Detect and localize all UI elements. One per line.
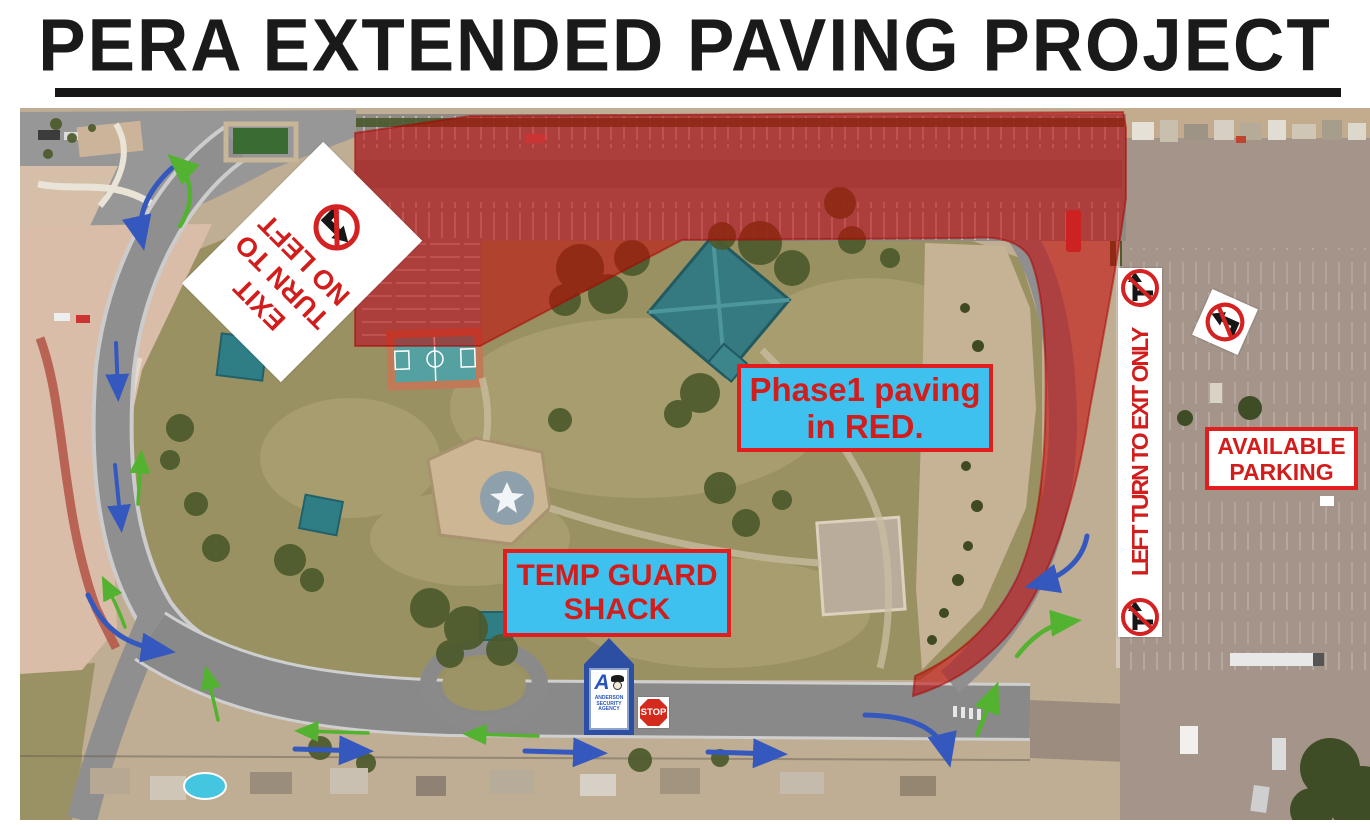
page: { "title": "PERA EXTENDED PAVING PROJECT…: [0, 0, 1370, 825]
title-underline: [55, 88, 1341, 97]
guard-shack-line1: TEMP GUARD: [516, 559, 717, 593]
available-parking-line1: AVAILABLE: [1217, 433, 1345, 459]
trailer-row: [1132, 120, 1366, 143]
security-guard-icon: [611, 675, 624, 691]
aerial-photo-layer: [20, 108, 1370, 820]
phase1-line1: Phase1 paving: [749, 371, 980, 408]
left-turn-exit-only-text: LEFT TURN TO EXIT ONLY: [1127, 308, 1154, 597]
shelter-b: [299, 495, 343, 536]
pool: [184, 773, 226, 799]
stop-sign: STOP: [638, 697, 669, 728]
guard-shack-logo: A ANDERSON SECURITY AGENCY: [589, 668, 629, 730]
no-straight-left-icon-bottom: [1120, 597, 1160, 637]
phase1-line2: in RED.: [806, 408, 923, 445]
anderson-company-line3: AGENCY: [595, 707, 624, 713]
stop-sign-text: STOP: [641, 707, 667, 718]
phase1-callout: Phase1 paving in RED.: [737, 364, 993, 452]
anderson-logo-letter: A: [594, 672, 609, 694]
available-parking-line2: PARKING: [1229, 459, 1333, 485]
left-turn-exit-only-strip: LEFT TURN TO EXIT ONLY: [1118, 268, 1162, 637]
page-title: PERA EXTENDED PAVING PROJECT: [0, 4, 1370, 88]
temp-guard-shack-callout: TEMP GUARD SHACK: [503, 549, 731, 637]
no-straight-left-icon-top: [1120, 268, 1160, 308]
stop-octagon-icon: STOP: [640, 699, 667, 726]
available-parking-callout: AVAILABLE PARKING: [1205, 427, 1358, 490]
aerial-site-map: Phase1 paving in RED. TEMP GUARD SHACK A…: [20, 108, 1370, 820]
guard-shack-line2: SHACK: [564, 593, 671, 627]
